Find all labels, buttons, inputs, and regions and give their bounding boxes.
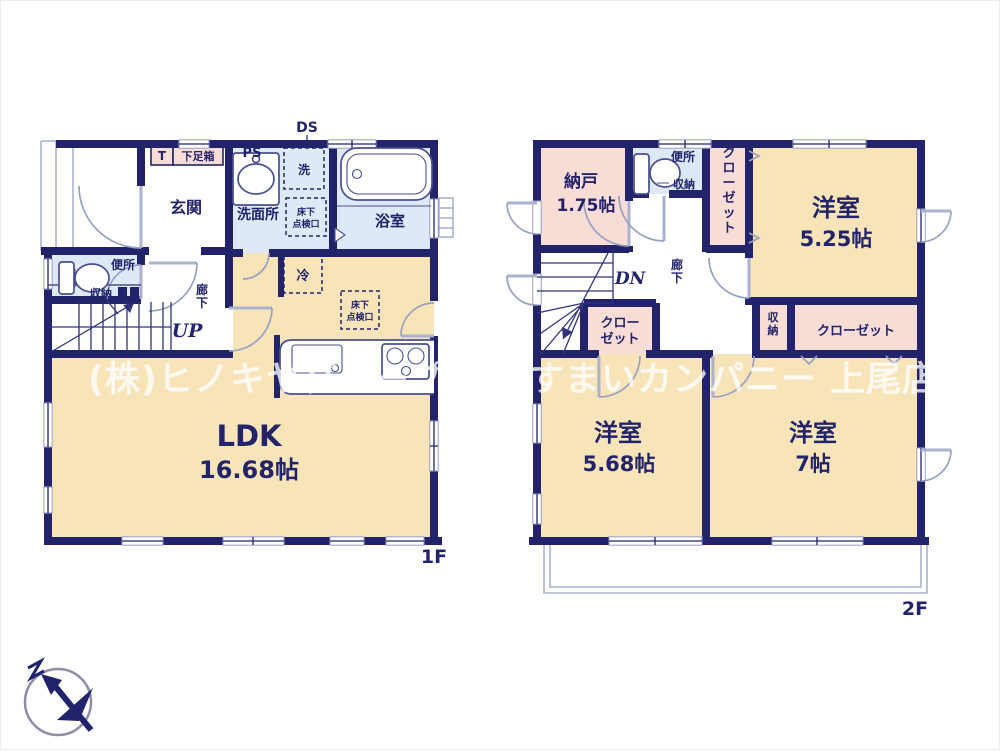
floor2-label: 2F (902, 598, 928, 620)
porch-lines (41, 141, 73, 251)
bath-label: 浴室 (375, 212, 405, 230)
toilet-storage-label-1f: 収納 (90, 286, 112, 300)
fridge-label: 冷 (296, 268, 309, 284)
closet-hall-l2: ゼット (600, 331, 639, 347)
closet-center-label: クローゼット (817, 323, 895, 339)
washer-label: 洗 (298, 162, 310, 177)
bathtub-icon (337, 148, 432, 206)
toilet-label-2f: 便所 (671, 149, 695, 164)
water-heater-icon (439, 198, 453, 237)
room-bedroom1 (749, 144, 921, 301)
bedroom2-label: 洋室 (594, 419, 642, 447)
toilet-storage-label-2f: 収納 (673, 177, 695, 191)
hallway-label-2f: 廊下 (671, 257, 683, 285)
watermark-text: (株)ヒノキヤグループ まいすまいカンパニー 上尾店 (88, 360, 938, 400)
ldk-label: LDK (216, 419, 283, 453)
floor1-label: 1F (421, 546, 447, 568)
kitchen-underfloor-l2: 点検口 (346, 311, 373, 323)
toilet-label-1f: 便所 (111, 257, 135, 272)
balcony (544, 545, 927, 593)
dn-label: DN (614, 269, 647, 289)
entrance-label: 玄関 (170, 198, 202, 217)
bedroom2-area: 5.68帖 (583, 452, 656, 476)
ds-label: DS (296, 120, 318, 136)
closet-right-label: クローゼット (722, 146, 735, 236)
washroom-label: 洗面所 (237, 206, 279, 223)
ldk-area: 16.68帖 (199, 456, 299, 484)
underfloor-l1: 床下 (297, 206, 315, 218)
bedroom3-area: 7帖 (795, 452, 831, 476)
front-door-arc (79, 186, 141, 248)
floor-1-plan: DS T 下足箱 玄関 PS 洗 洗面所 床下 点検口 浴室 便所 収納 廊下 … (41, 120, 453, 568)
floorplan-image: DS T 下足箱 玄関 PS 洗 洗面所 床下 点検口 浴室 便所 収納 廊下 … (0, 0, 1000, 750)
storeroom-area: 1.75帖 (557, 195, 616, 216)
bedroom1-label: 洋室 (812, 194, 860, 222)
hallway-label-1f: 廊下 (196, 282, 208, 310)
shoe-box-label: 下足箱 (182, 149, 215, 163)
storage-label-2f: 収納 (768, 311, 780, 337)
t-label: T (158, 149, 167, 163)
storeroom-label: 納戸 (564, 171, 598, 192)
bedroom1-area: 5.25帖 (800, 227, 873, 251)
bedroom3-label: 洋室 (789, 419, 837, 447)
compass-icon (25, 661, 93, 735)
closet-hall-l1: クロー (600, 316, 639, 331)
kitchen-underfloor-l1: 床下 (351, 299, 369, 311)
ps-label: PS (243, 146, 262, 161)
compass-n-mark (28, 661, 44, 678)
underfloor-l2: 点検口 (292, 218, 319, 230)
up-label: UP (172, 320, 204, 342)
